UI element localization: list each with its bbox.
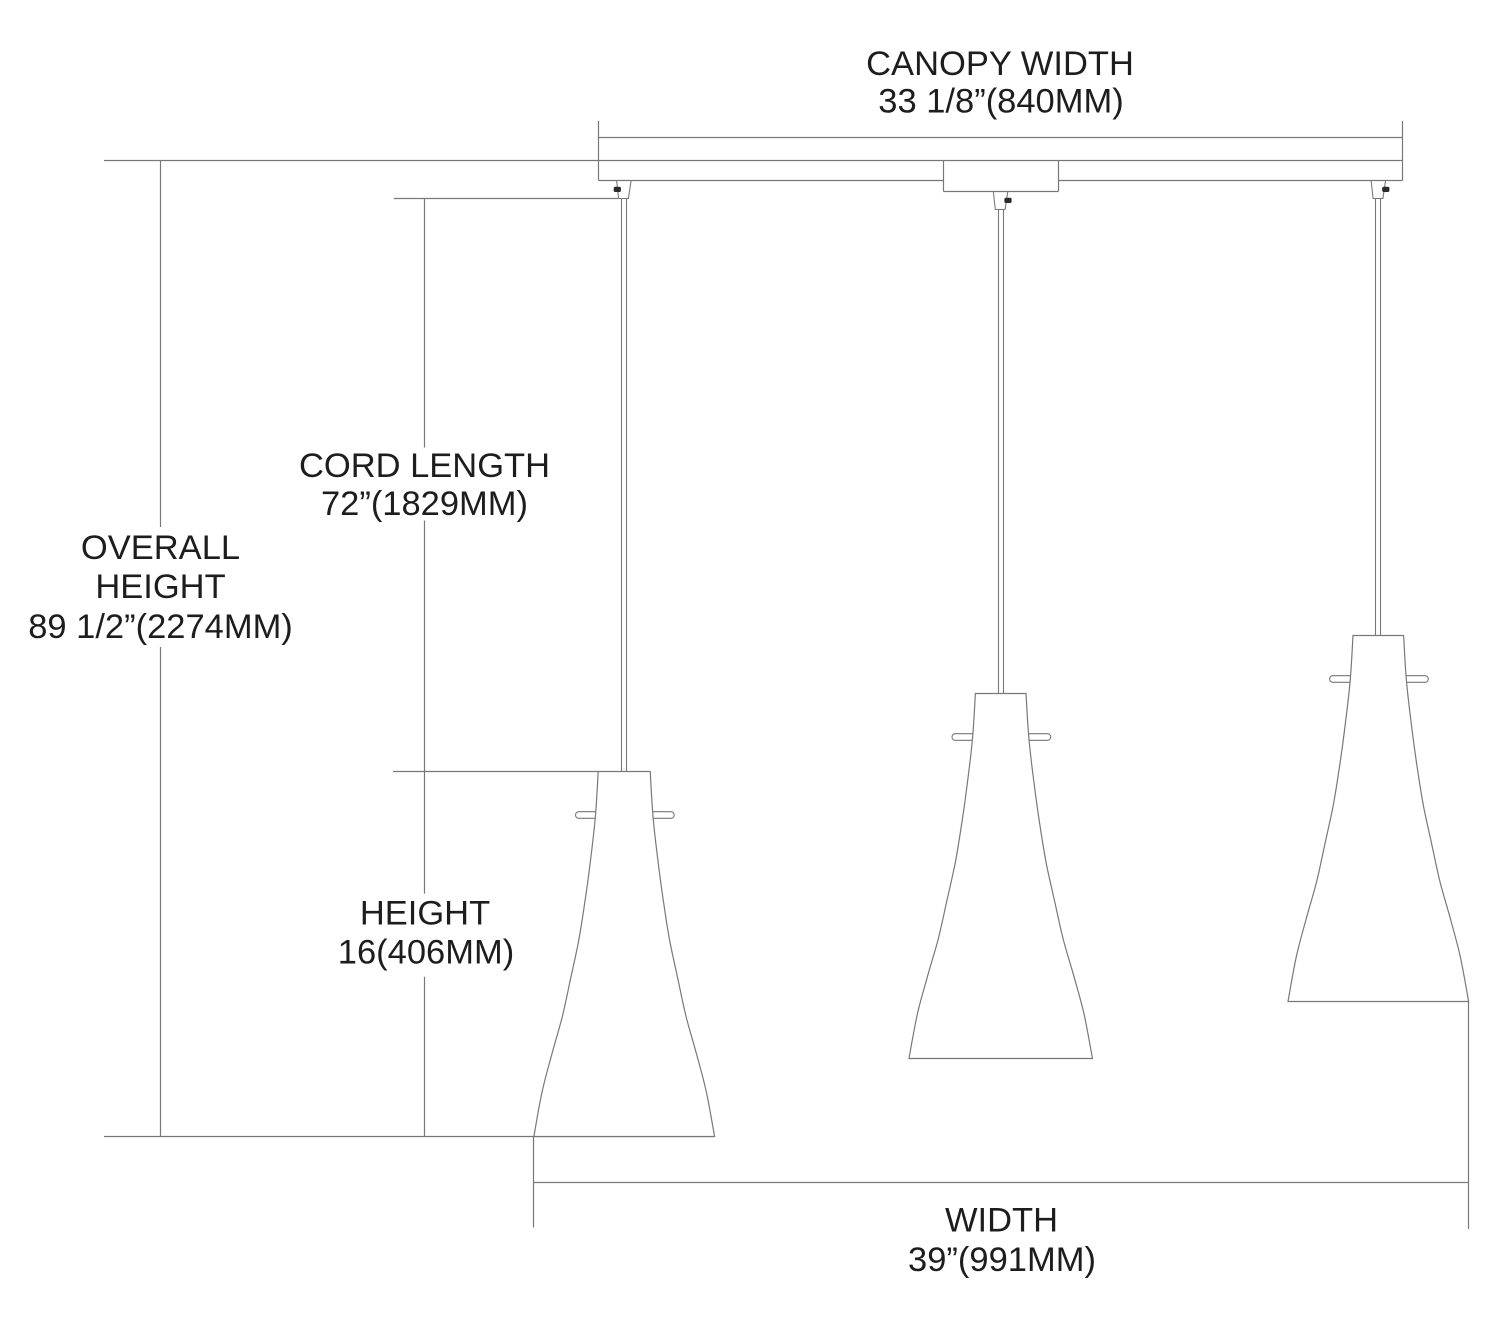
svg-text:OVERALL: OVERALL [81, 529, 240, 567]
svg-text:CORD LENGTH: CORD LENGTH [299, 447, 550, 485]
svg-text:16(406MM): 16(406MM) [338, 934, 514, 972]
svg-text:CANOPY WIDTH: CANOPY WIDTH [866, 45, 1134, 83]
svg-text:33 1/8”(840MM): 33 1/8”(840MM) [878, 82, 1123, 120]
svg-text:HEIGHT: HEIGHT [95, 568, 225, 606]
svg-text:72”(1829MM): 72”(1829MM) [321, 485, 528, 523]
svg-text:HEIGHT: HEIGHT [360, 895, 490, 933]
svg-text:WIDTH: WIDTH [945, 1202, 1058, 1240]
svg-text:89 1/2”(2274MM): 89 1/2”(2274MM) [28, 608, 293, 646]
svg-text:39”(991MM): 39”(991MM) [908, 1241, 1096, 1279]
